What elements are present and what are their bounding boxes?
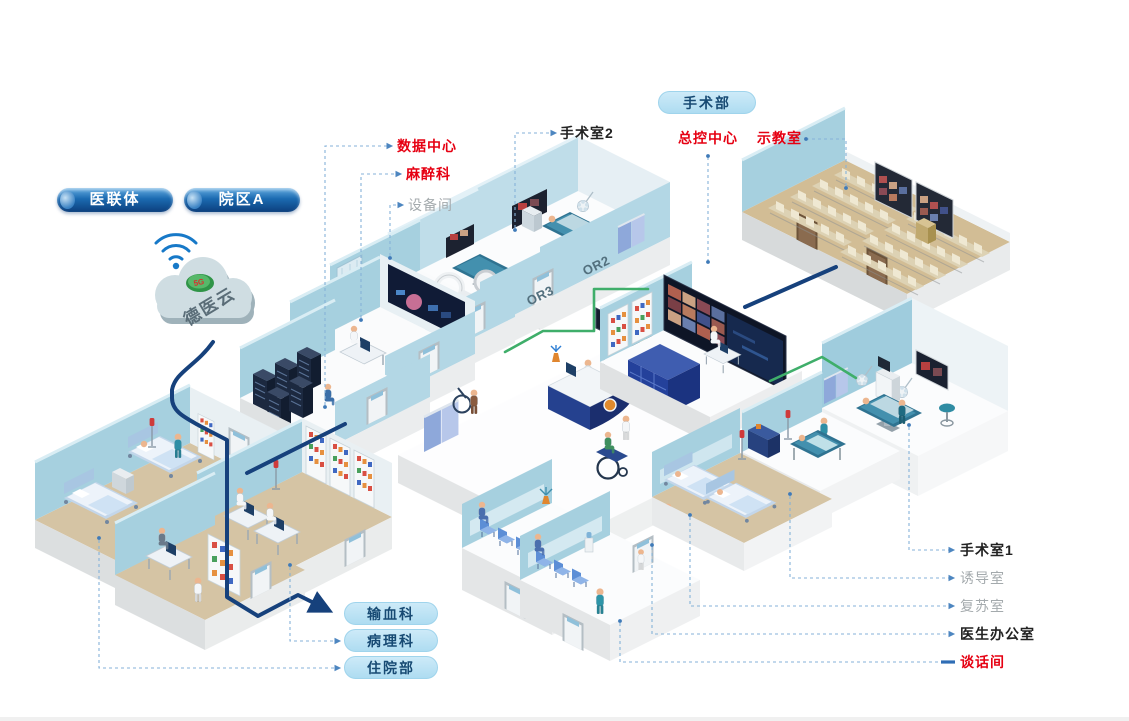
person-pathologist bbox=[194, 578, 201, 602]
label-data-center: 数据中心 bbox=[397, 139, 457, 154]
cloud-platform: 5G 德医云 bbox=[155, 235, 255, 330]
ward-shelf bbox=[198, 414, 214, 460]
person-nurse bbox=[174, 434, 181, 458]
label-anesthesia: 麻醉科 bbox=[406, 167, 451, 182]
label-talk-room: 谈话间 bbox=[960, 655, 1005, 670]
patient-head bbox=[549, 216, 556, 223]
person-standing-woman bbox=[596, 588, 604, 614]
wireless-ap-icon bbox=[551, 345, 561, 362]
person-nurse bbox=[638, 549, 644, 570]
bottom-edge-strip bbox=[0, 717, 1129, 721]
label-doctor-office: 医生办公室 bbox=[960, 627, 1035, 642]
blood-fridge bbox=[354, 450, 374, 508]
blood-fridge bbox=[330, 438, 350, 496]
label-recovery-room: 复苏室 bbox=[960, 599, 1005, 614]
backbone-cable-classroom bbox=[745, 267, 836, 307]
label-induction-room: 诱导室 bbox=[960, 571, 1005, 586]
label-master-control: 总控中心 bbox=[678, 131, 738, 146]
label-equipment-room: 设备间 bbox=[408, 198, 453, 213]
patient-head bbox=[675, 471, 681, 477]
pill-pathology-dept[interactable]: 病理科 bbox=[344, 629, 438, 652]
pill-campus-a[interactable]: 院区A bbox=[184, 188, 300, 212]
label-demo-classroom: 示教室 bbox=[757, 131, 802, 146]
person-surgeon bbox=[898, 400, 905, 424]
label-or1: 手术室1 bbox=[960, 543, 1014, 558]
person-doctor bbox=[622, 416, 629, 440]
patient-head bbox=[863, 398, 870, 405]
patient-head bbox=[717, 489, 723, 495]
pill-surgery-dept[interactable]: 手术部 bbox=[658, 91, 756, 114]
cloud-icon: 5G 德医云 bbox=[155, 257, 255, 329]
patient-head bbox=[141, 441, 147, 447]
pill-inpatient-dept[interactable]: 住院部 bbox=[344, 656, 438, 679]
pill-blood-dept[interactable]: 输血科 bbox=[344, 602, 438, 625]
hospital-isometric-diagram: 5G 德医云 bbox=[0, 0, 1129, 721]
label-or2: 手术室2 bbox=[560, 126, 614, 141]
pill-medical-alliance[interactable]: 医联体 bbox=[57, 188, 173, 212]
